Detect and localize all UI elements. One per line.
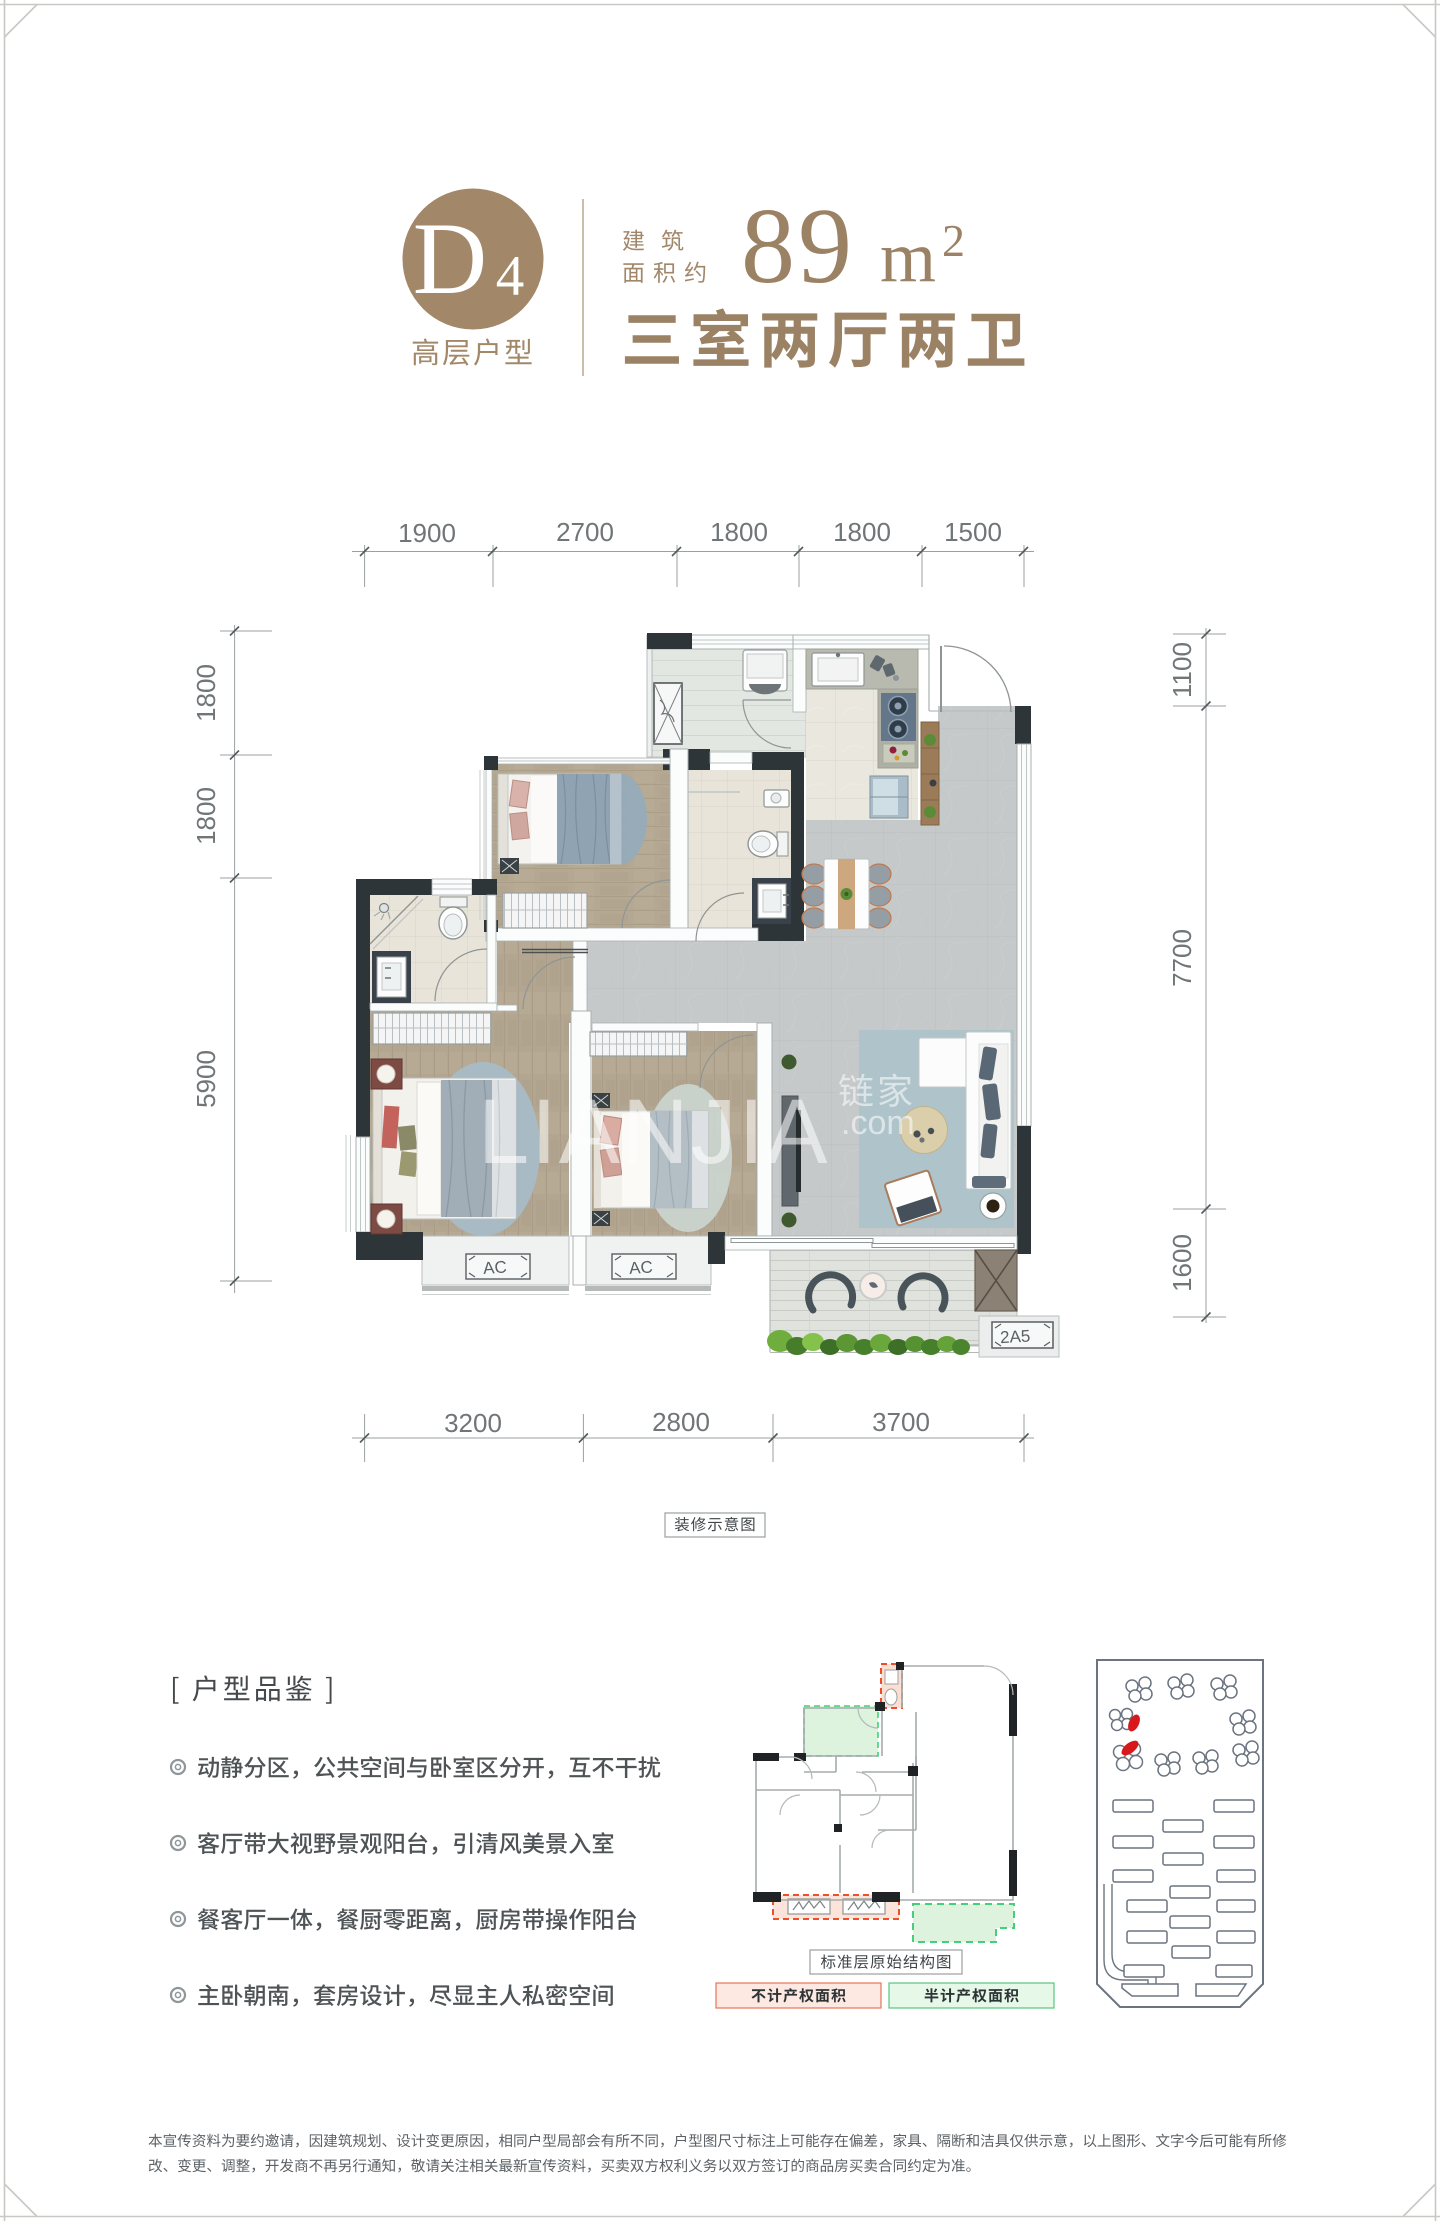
svg-text:1600: 1600 xyxy=(1167,1234,1197,1292)
svg-text:1800: 1800 xyxy=(710,517,768,547)
svg-text:5900: 5900 xyxy=(191,1050,221,1108)
svg-text:2700: 2700 xyxy=(556,517,614,547)
svg-text:89: 89 xyxy=(741,187,855,306)
svg-text:1800: 1800 xyxy=(833,517,891,547)
svg-text:1800: 1800 xyxy=(191,787,221,845)
svg-text:AC: AC xyxy=(482,1257,507,1278)
svg-text:1800: 1800 xyxy=(191,664,221,722)
svg-text:4: 4 xyxy=(496,245,525,308)
svg-text:3700: 3700 xyxy=(872,1407,930,1437)
svg-text:7700: 7700 xyxy=(1167,929,1197,987)
svg-text:1900: 1900 xyxy=(398,518,456,548)
svg-text:2A5: 2A5 xyxy=(1000,1327,1031,1348)
svg-text:3200: 3200 xyxy=(444,1408,502,1438)
svg-text:2: 2 xyxy=(942,215,965,266)
svg-text:1500: 1500 xyxy=(944,517,1002,547)
svg-text:m: m xyxy=(880,217,936,297)
svg-text:2800: 2800 xyxy=(652,1407,710,1437)
svg-text:D: D xyxy=(413,202,487,316)
svg-text:.com: .com xyxy=(841,1104,915,1142)
svg-text:AC: AC xyxy=(628,1257,653,1278)
svg-text:1100: 1100 xyxy=(1167,642,1197,698)
svg-text:LIANJIA: LIANJIA xyxy=(478,1081,829,1183)
